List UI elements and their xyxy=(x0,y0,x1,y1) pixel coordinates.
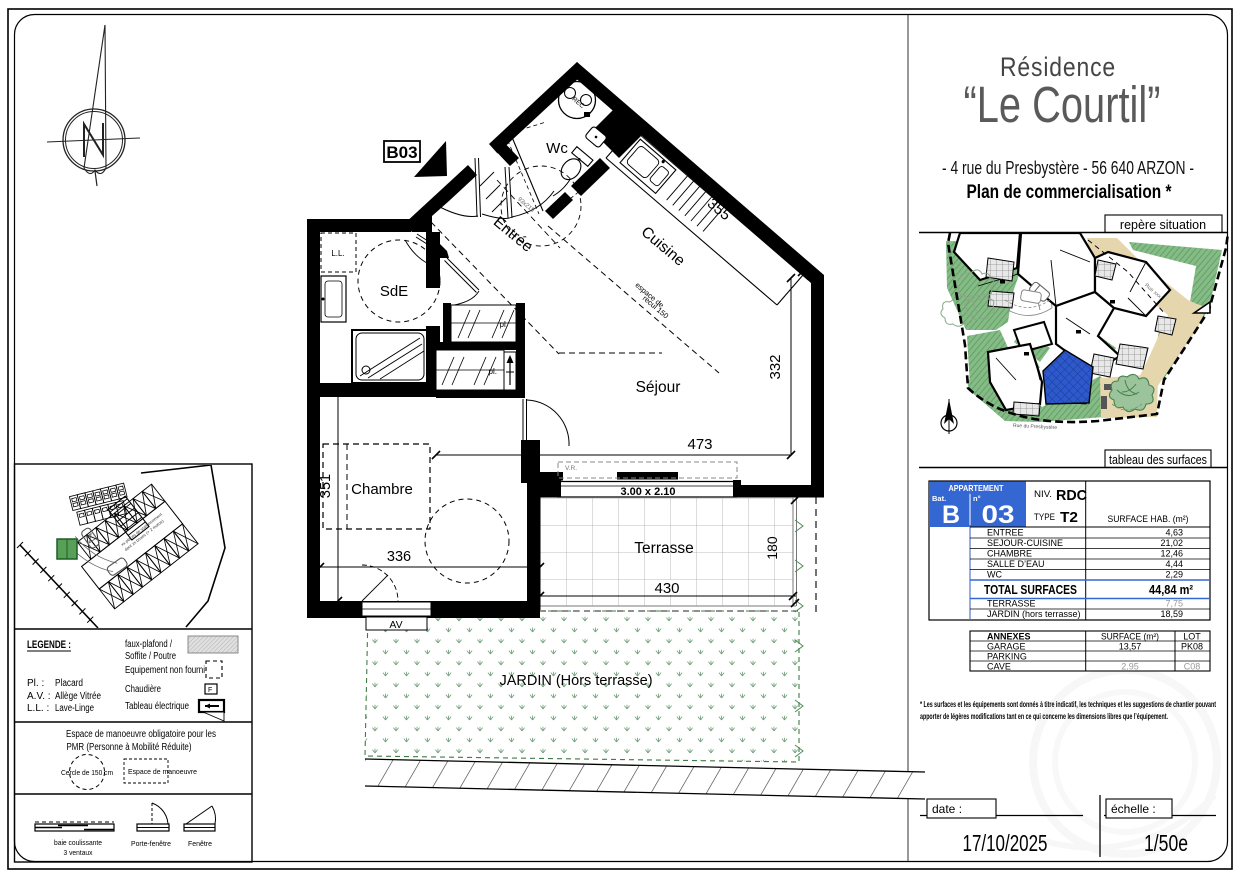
svg-text:Terrasse: Terrasse xyxy=(634,540,693,557)
svg-text:4,44: 4,44 xyxy=(1165,559,1183,569)
svg-text:L.L. :: L.L. : xyxy=(27,703,49,714)
svg-text:Porte-fenêtre: Porte-fenêtre xyxy=(131,839,171,848)
svg-text:SURFACE (m²): SURFACE (m²) xyxy=(1101,632,1159,642)
svg-text:SEJOUR-CUISINE: SEJOUR-CUISINE xyxy=(987,538,1063,548)
svg-text:+: + xyxy=(436,598,443,612)
svg-text:RDC: RDC xyxy=(1056,487,1087,504)
svg-text:Placard: Placard xyxy=(55,678,83,689)
svg-text:03: 03 xyxy=(982,501,1015,529)
svg-text:CAVE: CAVE xyxy=(987,662,1011,672)
svg-text:PARKING: PARKING xyxy=(987,652,1027,662)
svg-text:Equipement non fourni: Equipement non fourni xyxy=(125,665,205,676)
svg-text:180: 180 xyxy=(764,536,780,560)
svg-text:Fenêtre: Fenêtre xyxy=(188,839,212,848)
svg-text:WC: WC xyxy=(987,570,1002,580)
svg-text:4,63: 4,63 xyxy=(1165,528,1183,538)
svg-text:332: 332 xyxy=(767,354,784,379)
svg-text:LEGENDE :: LEGENDE : xyxy=(27,639,71,651)
svg-text:Soffite / Poutre: Soffite / Poutre xyxy=(125,651,176,662)
svg-text:473: 473 xyxy=(687,436,712,453)
svg-text:“Le Courtil”: “Le Courtil” xyxy=(964,76,1161,133)
svg-text:baie coulissante: baie coulissante xyxy=(54,838,102,847)
svg-text:tableau des surfaces: tableau des surfaces xyxy=(1109,453,1207,467)
svg-text:SdE: SdE xyxy=(380,283,408,300)
svg-text:Cercle de 150 cm: Cercle de 150 cm xyxy=(61,768,113,777)
svg-text:PK08: PK08 xyxy=(1181,642,1203,652)
svg-text:JARDIN (hors terrasse): JARDIN (hors terrasse) xyxy=(987,609,1081,619)
svg-text:LOT: LOT xyxy=(1183,632,1201,642)
svg-text:TYPE: TYPE xyxy=(1034,512,1055,523)
svg-text:17/10/2025: 17/10/2025 xyxy=(963,830,1048,856)
svg-text:ANNEXES: ANNEXES xyxy=(987,632,1031,642)
svg-text:- 4 rue du Presbystère - 56 64: - 4 rue du Presbystère - 56 640 ARZON - xyxy=(942,158,1194,178)
svg-text:faux-plafond /: faux-plafond / xyxy=(125,639,172,650)
svg-text:SURFACE HAB. (m²): SURFACE HAB. (m²) xyxy=(1108,514,1189,525)
svg-text:apporter de légères modificati: apporter de légères modifications tant e… xyxy=(920,711,1168,721)
svg-text:Tableau électrique: Tableau électrique xyxy=(125,701,189,712)
svg-text:336: 336 xyxy=(387,549,411,565)
svg-text:1/50e: 1/50e xyxy=(1144,830,1188,856)
svg-text:CHAMBRE: CHAMBRE xyxy=(987,549,1032,559)
svg-text:B03: B03 xyxy=(386,143,417,162)
svg-text:3 ventaux: 3 ventaux xyxy=(64,848,93,857)
svg-text:TERRASSE: TERRASSE xyxy=(987,599,1036,609)
svg-text:2,95: 2,95 xyxy=(1121,662,1139,672)
svg-text:Espace de manoeuvre obligatoir: Espace de manoeuvre obligatoire pour les xyxy=(66,729,216,740)
svg-text:SALLE D’EAU: SALLE D’EAU xyxy=(987,559,1045,569)
svg-text:NIV.: NIV. xyxy=(1034,489,1052,500)
svg-text:Wc: Wc xyxy=(546,140,568,157)
svg-text:A.V. :: A.V. : xyxy=(27,691,51,702)
svg-text:B: B xyxy=(942,501,960,529)
svg-text:12,46: 12,46 xyxy=(1160,549,1183,559)
svg-text:pl.: pl. xyxy=(500,320,508,329)
svg-text:APPARTEMENT: APPARTEMENT xyxy=(949,483,1005,493)
svg-text:Pl. :: Pl. : xyxy=(27,678,44,689)
svg-text:date :: date : xyxy=(932,802,962,816)
svg-text:430: 430 xyxy=(654,580,679,597)
svg-text:T2: T2 xyxy=(1060,510,1078,526)
svg-text:351: 351 xyxy=(318,474,334,498)
svg-text:3.00 x 2.10: 3.00 x 2.10 xyxy=(620,486,675,498)
svg-text:V.R.: V.R. xyxy=(565,465,577,472)
svg-text:JARDIN (Hors terrasse): JARDIN (Hors terrasse) xyxy=(499,673,652,689)
svg-text:PMR (Personne à Mobilité Rédui: PMR (Personne à Mobilité Réduite) xyxy=(67,742,192,753)
svg-text:Séjour: Séjour xyxy=(636,379,681,396)
svg-text:21,02: 21,02 xyxy=(1160,538,1183,548)
svg-text:échelle :: échelle : xyxy=(1111,802,1156,816)
svg-text:TOTAL SURFACES: TOTAL SURFACES xyxy=(984,583,1077,597)
svg-text:Allège Vitrée: Allège Vitrée xyxy=(55,691,101,702)
svg-text:L.L.: L.L. xyxy=(331,249,344,258)
svg-text:n°: n° xyxy=(973,494,981,503)
svg-text:44,84 m²: 44,84 m² xyxy=(1149,583,1193,597)
svg-text:13,57: 13,57 xyxy=(1119,642,1142,652)
svg-text:repère situation: repère situation xyxy=(1120,218,1206,232)
svg-text:Espace de manoeuvre: Espace de manoeuvre xyxy=(128,767,197,776)
svg-text:AV: AV xyxy=(389,619,402,631)
svg-text:Lave-Linge: Lave-Linge xyxy=(55,703,94,714)
svg-text:pl.: pl. xyxy=(489,367,497,376)
svg-text:F: F xyxy=(208,687,212,694)
svg-text:2,29: 2,29 xyxy=(1165,570,1183,580)
svg-text:GARAGE: GARAGE xyxy=(987,642,1026,652)
svg-text:Plan de commercialisation *: Plan de commercialisation * xyxy=(967,182,1172,203)
svg-text:7,75: 7,75 xyxy=(1165,599,1183,609)
svg-text:Chaudière: Chaudière xyxy=(125,684,161,695)
svg-text:* Les surfaces et les équipeme: * Les surfaces et les équipements sont d… xyxy=(920,699,1216,709)
svg-text:18,59: 18,59 xyxy=(1160,609,1183,619)
svg-text:ENTREE: ENTREE xyxy=(987,528,1024,538)
svg-text:Chambre: Chambre xyxy=(351,481,413,498)
svg-text:C08: C08 xyxy=(1184,662,1201,672)
